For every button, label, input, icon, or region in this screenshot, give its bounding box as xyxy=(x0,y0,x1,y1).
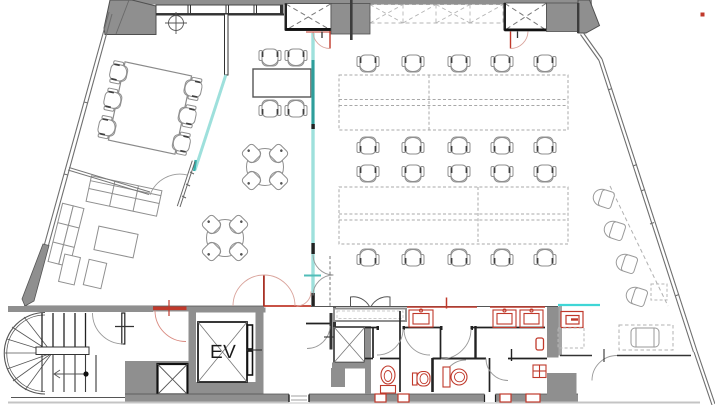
svg-text:EV: EV xyxy=(210,342,236,363)
